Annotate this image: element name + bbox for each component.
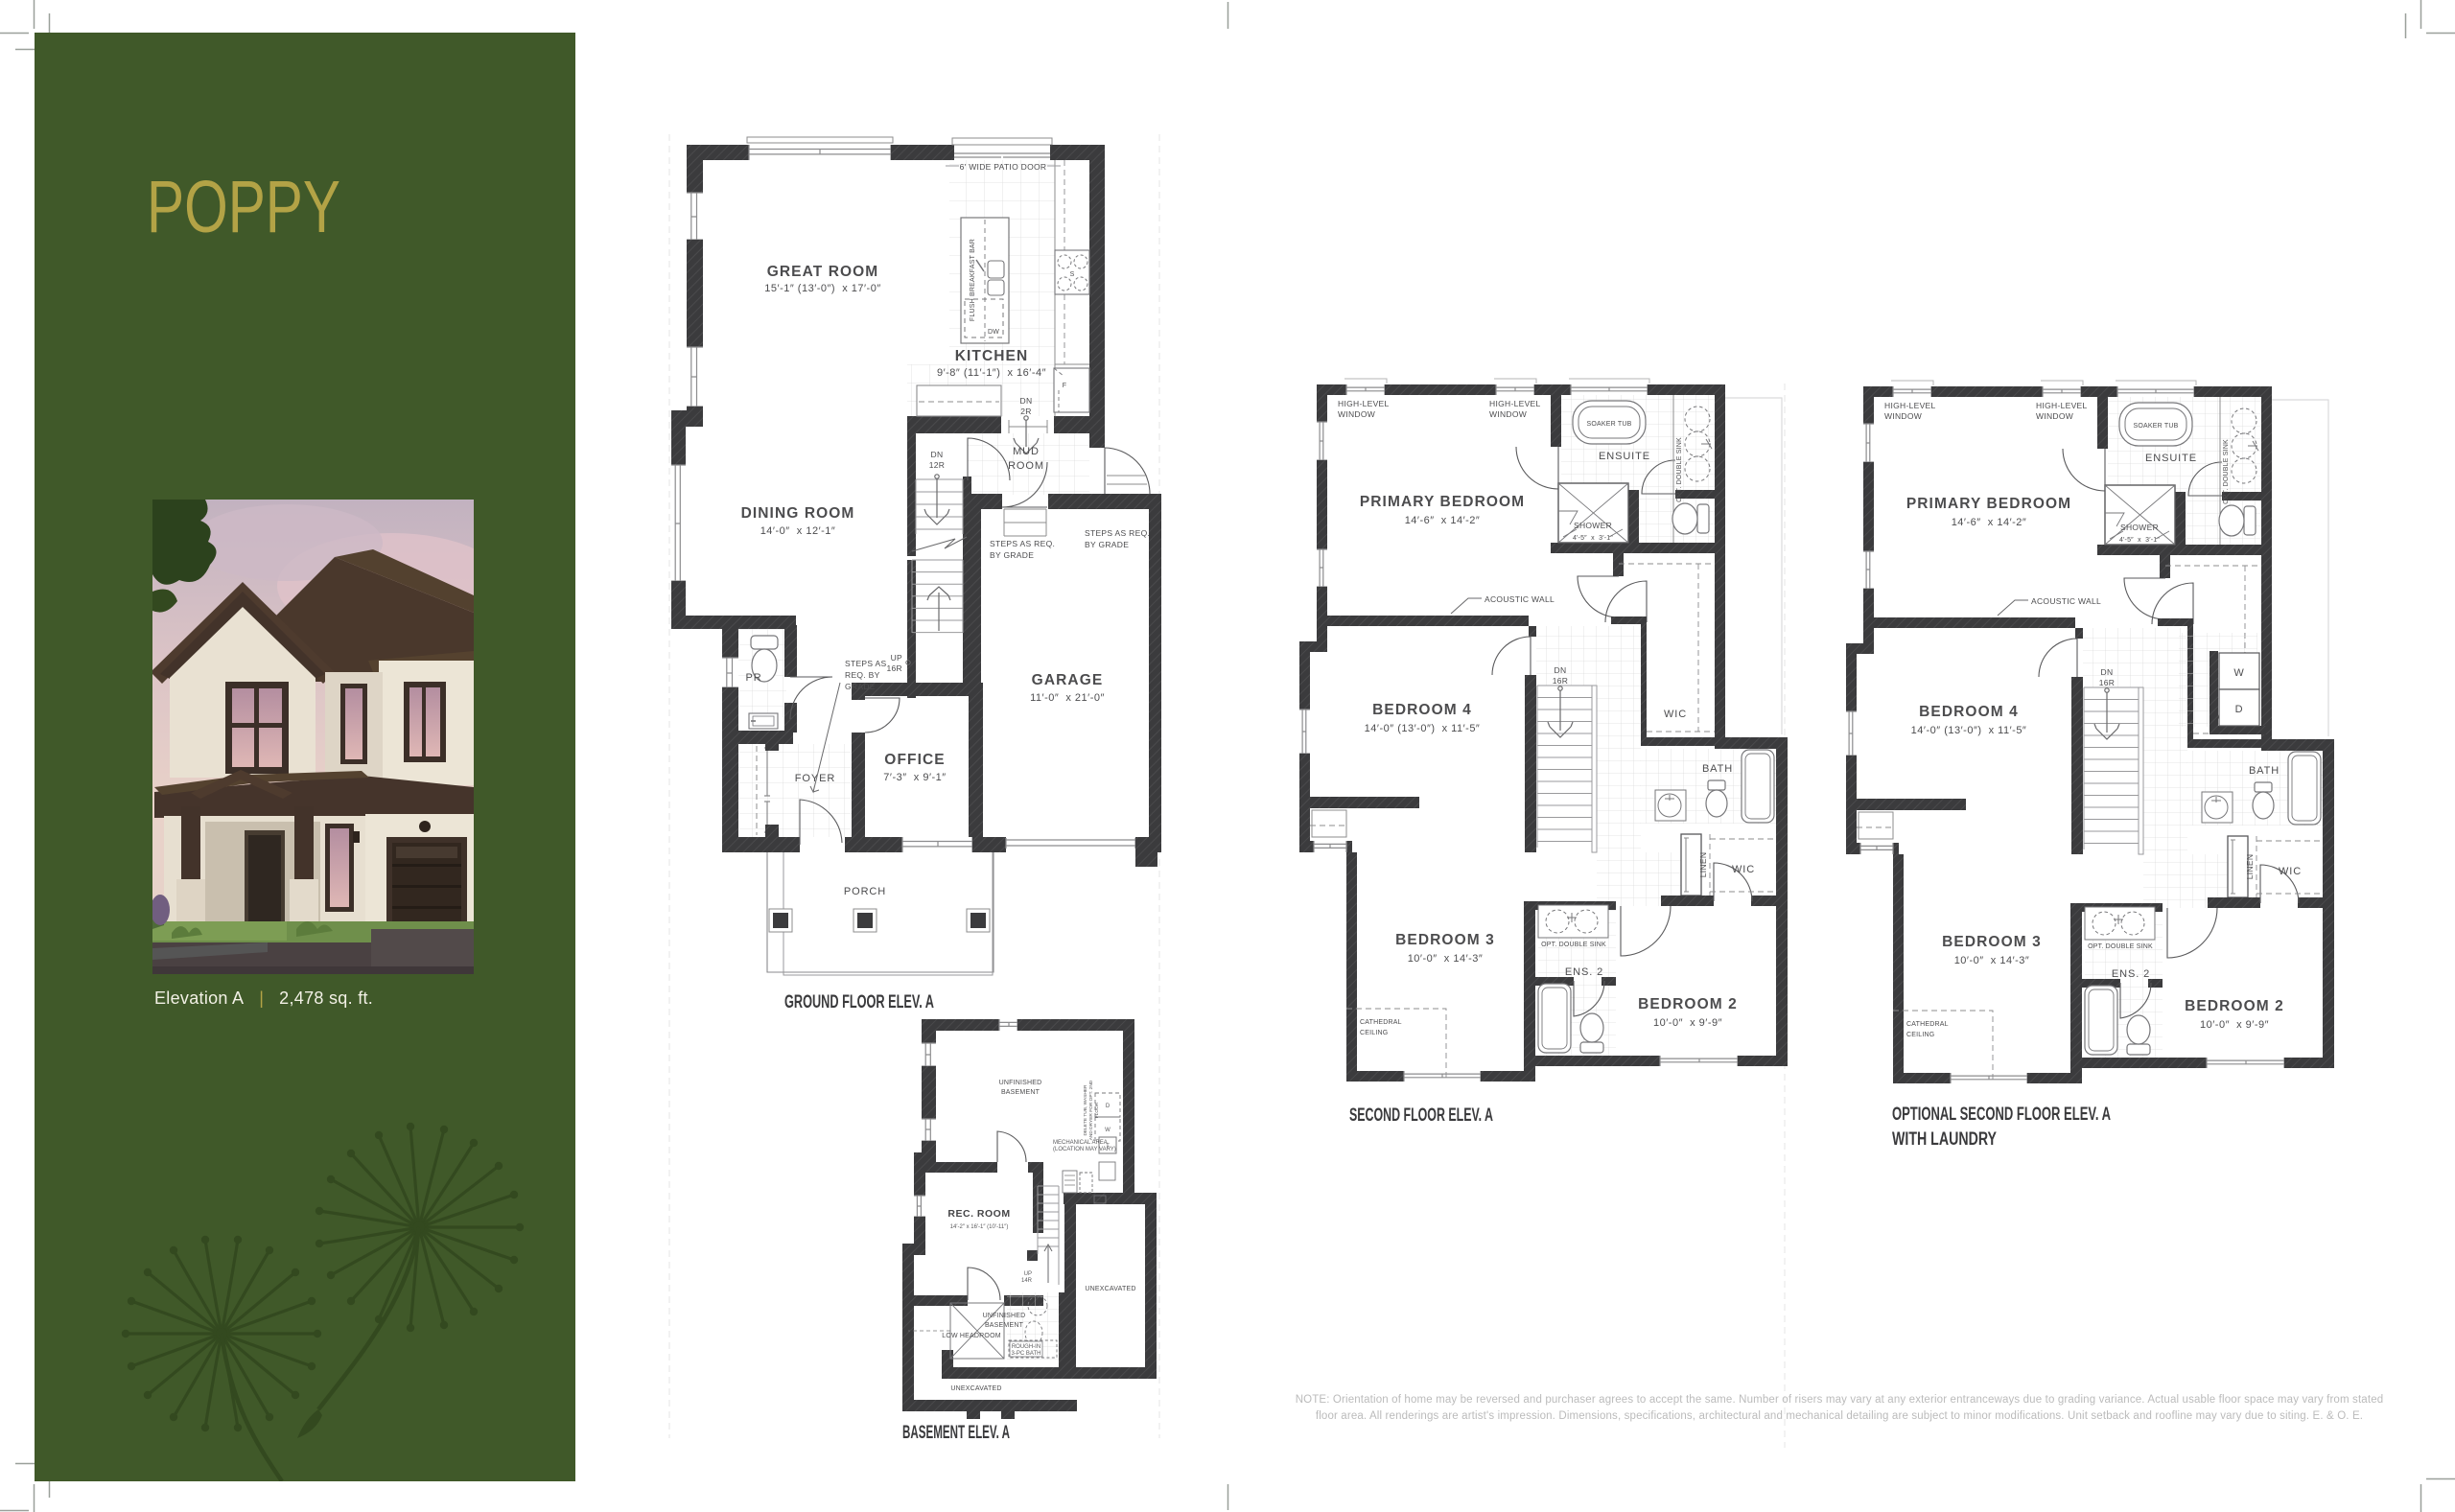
svg-text:F: F bbox=[1063, 383, 1066, 389]
svg-text:ENSUITE: ENSUITE bbox=[1599, 451, 1650, 462]
svg-text:PR: PR bbox=[745, 672, 761, 684]
svg-text:W: W bbox=[1105, 1128, 1111, 1133]
svg-text:POPPY: POPPY bbox=[147, 166, 340, 248]
svg-text:DINING ROOM: DINING ROOM bbox=[741, 505, 855, 522]
svg-text:WIC: WIC bbox=[1732, 864, 1755, 875]
svg-text:DN: DN bbox=[1555, 665, 1567, 675]
svg-text:15′-1″ (13′-0″) x 17′-0″: 15′-1″ (13′-0″) x 17′-0″ bbox=[764, 283, 880, 294]
svg-text:REQ. BY: REQ. BY bbox=[845, 670, 880, 680]
svg-text:KITCHEN: KITCHEN bbox=[955, 348, 1029, 364]
svg-text:UP: UP bbox=[1024, 1271, 1032, 1277]
svg-text:14′-0″ (13′-0″) x 11′-5″: 14′-0″ (13′-0″) x 11′-5″ bbox=[1365, 723, 1481, 734]
svg-text:ROOM: ROOM bbox=[1008, 460, 1044, 472]
svg-text:LINEN: LINEN bbox=[1698, 852, 1708, 878]
svg-text:CATHEDRAL: CATHEDRAL bbox=[1360, 1019, 1402, 1026]
svg-text:ROUGH-IN: ROUGH-IN bbox=[1012, 1344, 1040, 1350]
svg-text:STEPS AS REQ.: STEPS AS REQ. bbox=[1085, 528, 1150, 538]
svg-text:BASEMENT: BASEMENT bbox=[985, 1322, 1024, 1329]
svg-text:PORCH: PORCH bbox=[844, 886, 886, 897]
svg-text:UNEXCAVATED: UNEXCAVATED bbox=[1085, 1286, 1135, 1292]
svg-text:GREAT ROOM: GREAT ROOM bbox=[767, 264, 879, 280]
svg-text:4′-5″ x 3′-1″: 4′-5″ x 3′-1″ bbox=[1573, 535, 1613, 542]
svg-text:AND DRYER FOR OPT. 2ND: AND DRYER FOR OPT. 2ND bbox=[1088, 1080, 1094, 1140]
svg-text:14′-2″ x 16′-1″ (10′-11″): 14′-2″ x 16′-1″ (10′-11″) bbox=[950, 1224, 1009, 1230]
svg-text:10′-0″ x 9′-9″: 10′-0″ x 9′-9″ bbox=[1653, 1017, 1722, 1029]
svg-text:HIGH-LEVEL: HIGH-LEVEL bbox=[1338, 399, 1390, 408]
svg-text:WITH LAUNDRY: WITH LAUNDRY bbox=[1892, 1129, 1997, 1150]
svg-text:UNEXCAVATED: UNEXCAVATED bbox=[950, 1385, 1001, 1392]
svg-text:REC. ROOM: REC. ROOM bbox=[947, 1208, 1010, 1220]
svg-text:12R: 12R bbox=[929, 460, 946, 470]
svg-text:BEDROOM 2: BEDROOM 2 bbox=[1638, 996, 1738, 1012]
svg-text:OPTIONAL SECOND FLOOR ELEV. A: OPTIONAL SECOND FLOOR ELEV. A bbox=[1892, 1105, 2111, 1125]
svg-text:14′-0″ x 12′-1″: 14′-0″ x 12′-1″ bbox=[760, 525, 836, 537]
svg-text:STEPS AS REQ.: STEPS AS REQ. bbox=[990, 539, 1055, 548]
svg-text:OPT. DOUBLE SINK: OPT. DOUBLE SINK bbox=[1541, 942, 1606, 948]
svg-text:7′-3″ x 9′-1″: 7′-3″ x 9′-1″ bbox=[883, 772, 946, 783]
svg-text:SHOWER: SHOWER bbox=[1574, 521, 1612, 530]
svg-text:OPT. DOUBLE SINK: OPT. DOUBLE SINK bbox=[1676, 437, 1683, 502]
svg-text:BATH: BATH bbox=[1702, 763, 1733, 775]
svg-text:3-PC BATH: 3-PC BATH bbox=[1012, 1351, 1041, 1357]
svg-text:DN: DN bbox=[1020, 396, 1033, 406]
svg-text:9′-8″ (11′-1″) x 16′-4″: 9′-8″ (11′-1″) x 16′-4″ bbox=[937, 367, 1046, 379]
svg-text:BEDROOM 3: BEDROOM 3 bbox=[1395, 932, 1495, 948]
svg-text:SECOND FLOOR ELEV. A: SECOND FLOOR ELEV. A bbox=[1349, 1105, 1493, 1126]
svg-text:BEDROOM 4: BEDROOM 4 bbox=[1372, 702, 1472, 718]
svg-text:FLUSH BREAKFAST BAR: FLUSH BREAKFAST BAR bbox=[970, 239, 976, 321]
svg-text:BASEMENT: BASEMENT bbox=[1001, 1089, 1040, 1096]
svg-text:ENS. 2: ENS. 2 bbox=[1565, 966, 1603, 978]
svg-text:S: S bbox=[1070, 271, 1075, 278]
svg-text:STEPS AS: STEPS AS bbox=[845, 659, 887, 668]
svg-text:UNFINISHED: UNFINISHED bbox=[999, 1080, 1042, 1086]
svg-text:HIGH-LEVEL: HIGH-LEVEL bbox=[1489, 399, 1541, 408]
svg-text:WINDOW: WINDOW bbox=[1489, 409, 1527, 419]
svg-text:SOAKER TUB: SOAKER TUB bbox=[1587, 421, 1632, 428]
svg-text:6′ WIDE PATIO DOOR: 6′ WIDE PATIO DOOR bbox=[960, 162, 1047, 172]
svg-text:MECHANICAL AREA: MECHANICAL AREA bbox=[1053, 1140, 1108, 1146]
svg-text:14R: 14R bbox=[1021, 1278, 1033, 1284]
svg-text:BY GRADE: BY GRADE bbox=[1085, 540, 1129, 549]
svg-text:11′-0″ x 21′-0″: 11′-0″ x 21′-0″ bbox=[1030, 692, 1105, 704]
svg-text:LOW HEADROOM: LOW HEADROOM bbox=[942, 1333, 1001, 1339]
svg-text:OFFICE: OFFICE bbox=[884, 752, 945, 768]
svg-text:UP: UP bbox=[891, 653, 902, 663]
svg-text:D: D bbox=[2235, 704, 2244, 715]
svg-text:GARAGE: GARAGE bbox=[1032, 672, 1104, 688]
svg-text:DN: DN bbox=[931, 450, 944, 459]
svg-text:(LOCATION MAY VARY): (LOCATION MAY VARY) bbox=[1053, 1147, 1116, 1152]
svg-text:ACOUSTIC WALL: ACOUSTIC WALL bbox=[1485, 594, 1555, 604]
svg-text:W: W bbox=[2233, 667, 2244, 679]
svg-text:2R: 2R bbox=[1020, 407, 1031, 416]
svg-text:BASEMENT ELEV. A: BASEMENT ELEV. A bbox=[902, 1423, 1010, 1443]
svg-text:D: D bbox=[1106, 1104, 1111, 1109]
svg-text:PRIMARY BEDROOM: PRIMARY BEDROOM bbox=[1360, 494, 1525, 510]
svg-text:14′-6″ x 14′-2″: 14′-6″ x 14′-2″ bbox=[1405, 515, 1481, 526]
svg-text:WIC: WIC bbox=[1664, 709, 1687, 720]
svg-text:16R: 16R bbox=[1553, 676, 1569, 686]
svg-text:BY GRADE: BY GRADE bbox=[990, 550, 1034, 560]
svg-text:DELETE TUB, WASHER: DELETE TUB, WASHER bbox=[1083, 1084, 1088, 1136]
svg-text:MUD: MUD bbox=[1013, 446, 1040, 457]
svg-text:10′-0″ x 14′-3″: 10′-0″ x 14′-3″ bbox=[1408, 953, 1484, 965]
svg-text:CEILING: CEILING bbox=[1360, 1030, 1388, 1036]
svg-text:WINDOW: WINDOW bbox=[1338, 409, 1375, 419]
svg-text:UNFINISHED: UNFINISHED bbox=[983, 1313, 1026, 1319]
svg-text:FLOOR: FLOOR bbox=[1094, 1102, 1100, 1118]
svg-text:16R: 16R bbox=[887, 663, 903, 673]
svg-text:DW: DW bbox=[988, 329, 999, 336]
svg-text:GRADE: GRADE bbox=[845, 682, 876, 691]
